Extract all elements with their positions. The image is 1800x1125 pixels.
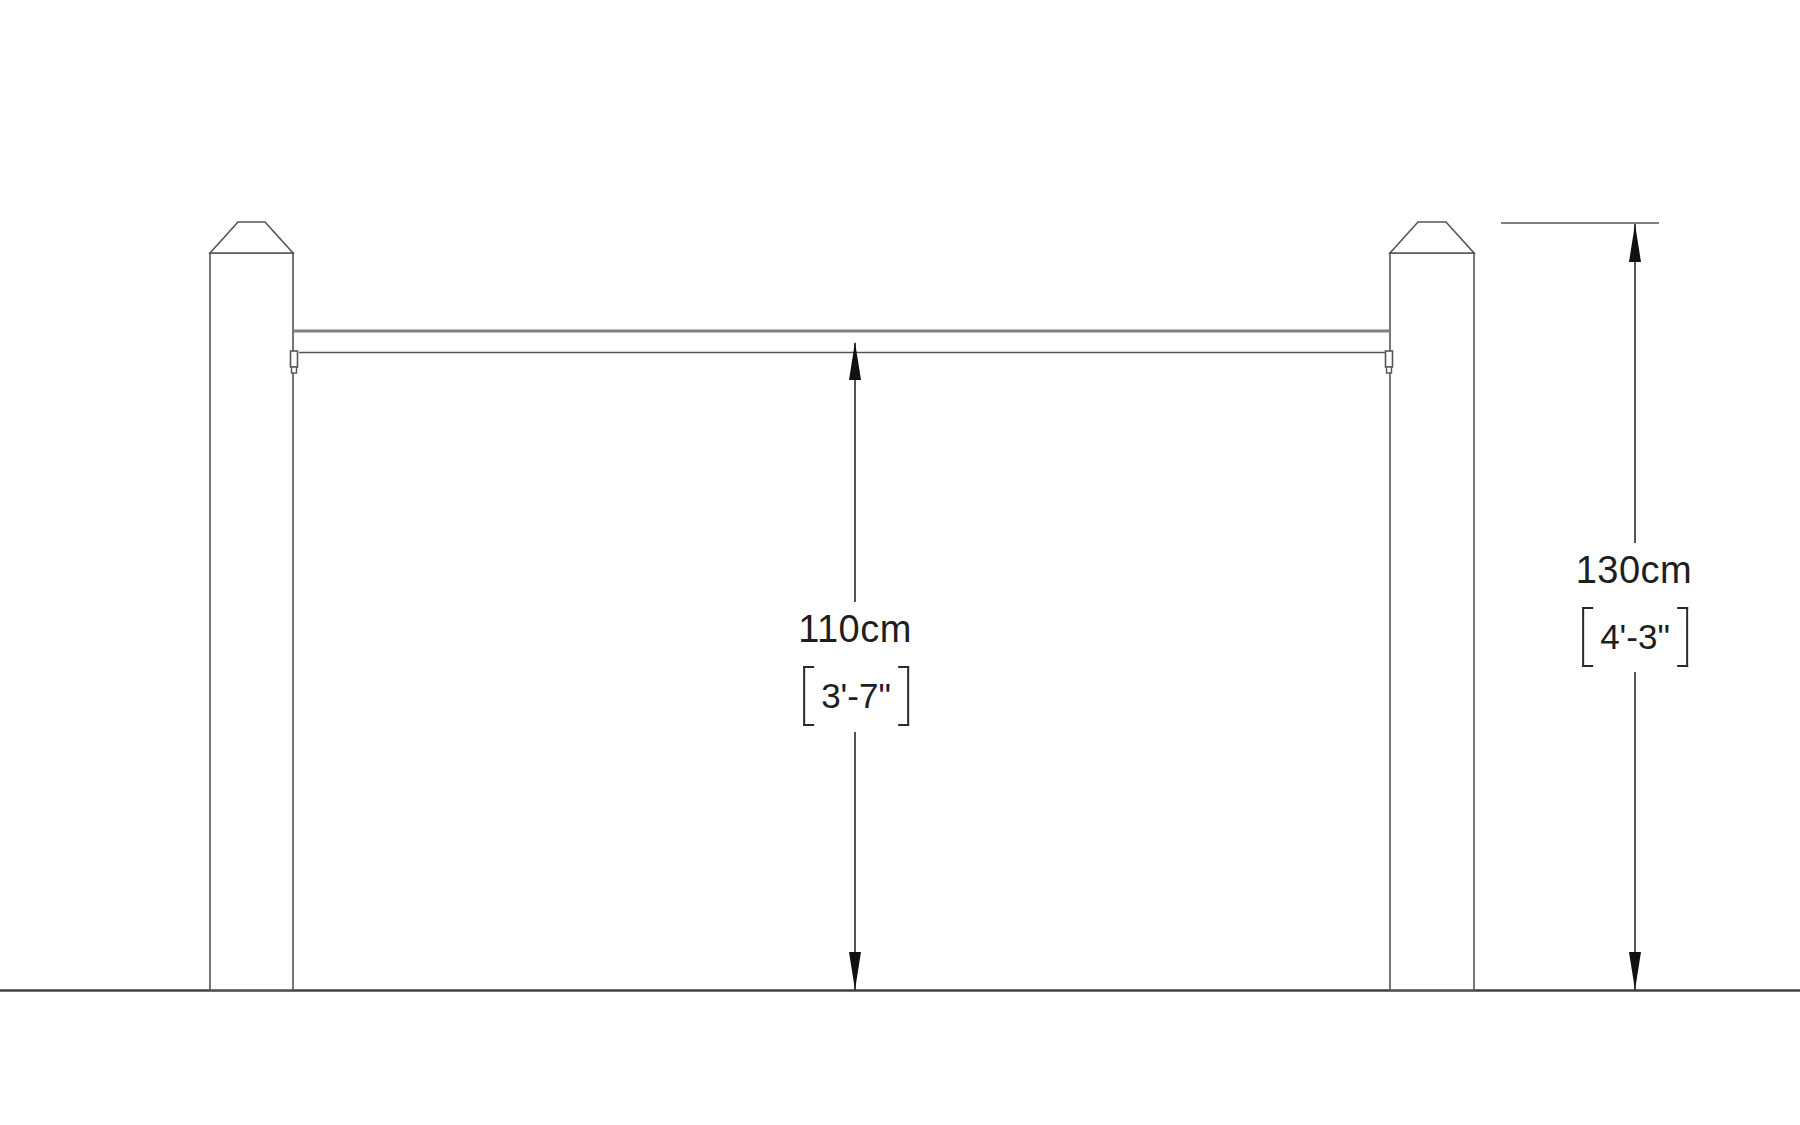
left-post — [210, 222, 293, 990]
bracket-left-icon — [803, 666, 814, 726]
rail-height-imperial-label: 3'-7" — [814, 676, 898, 716]
post-height-imperial-label: 4'-3" — [1593, 617, 1677, 657]
left-post-cap — [210, 222, 293, 253]
drawing-canvas — [0, 0, 1800, 1125]
rail-height-cm-label: 110cm — [798, 608, 912, 651]
bracket-left-icon — [1582, 607, 1593, 667]
post-height-imperial-group: 4'-3" — [1582, 607, 1688, 667]
rail-height-imperial-group: 3'-7" — [803, 666, 909, 726]
arrow-down-icon — [849, 952, 861, 990]
bracket-right-icon — [1677, 607, 1688, 667]
right-post — [1390, 222, 1474, 990]
fence-elevation-diagram: 110cm 3'-7" 130cm 4'-3" — [0, 0, 1800, 1125]
arrow-up-icon — [1629, 224, 1641, 262]
rail-bracket-right — [1386, 351, 1393, 373]
arrow-up-icon — [849, 342, 861, 380]
post-height-cm-label: 130cm — [1576, 549, 1693, 592]
right-post-cap — [1390, 222, 1474, 253]
right-post-body — [1390, 253, 1474, 990]
bracket-right-icon — [898, 666, 909, 726]
left-post-body — [210, 253, 293, 990]
arrow-down-icon — [1629, 952, 1641, 990]
rail-bracket-left — [291, 351, 298, 373]
rail — [291, 331, 1393, 373]
